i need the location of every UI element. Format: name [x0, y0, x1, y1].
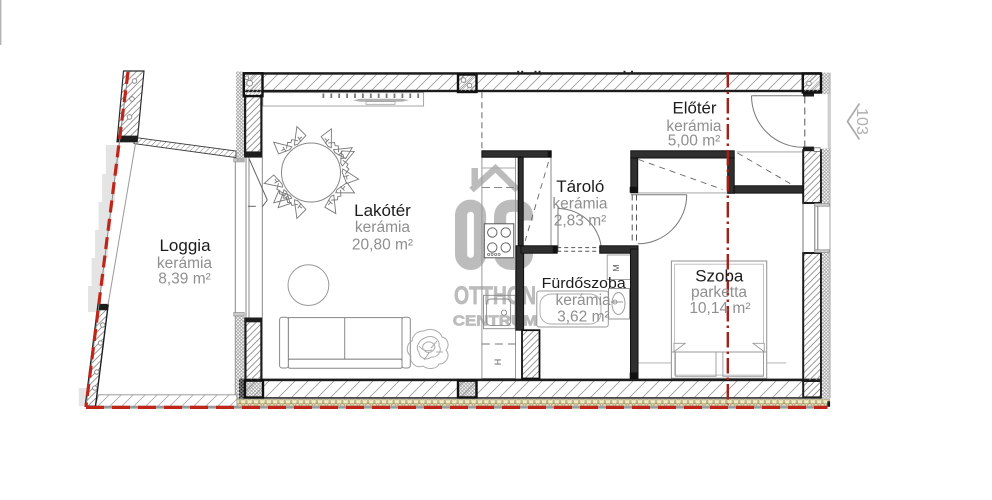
- svg-text:kerámia: kerámia: [355, 219, 411, 236]
- svg-text:M: M: [611, 264, 621, 271]
- svg-text:kerámia: kerámia: [552, 196, 608, 213]
- svg-text:kerámia: kerámia: [556, 292, 612, 309]
- svg-text:8,39 m²: 8,39 m²: [158, 271, 211, 288]
- svg-text:Tároló: Tároló: [556, 177, 604, 196]
- svg-text:5,00 m²: 5,00 m²: [668, 133, 721, 150]
- svg-text:CENTRUM: CENTRUM: [453, 313, 538, 330]
- svg-text:Lakótér: Lakótér: [354, 201, 411, 220]
- svg-text:2,83 m²: 2,83 m²: [554, 212, 607, 229]
- svg-text:parketta: parketta: [691, 284, 747, 301]
- svg-text:20,80 m²: 20,80 m²: [352, 236, 413, 253]
- svg-text:H: H: [493, 359, 503, 366]
- svg-text:Előtér: Előtér: [673, 99, 717, 118]
- svg-text:3,62 m²: 3,62 m²: [557, 308, 610, 325]
- svg-text:103: 103: [853, 108, 870, 135]
- svg-text:Loggia: Loggia: [159, 236, 211, 255]
- svg-text:10,14 m²: 10,14 m²: [689, 300, 750, 317]
- svg-text:kerámia: kerámia: [157, 255, 213, 272]
- svg-text:Fürdőszoba: Fürdőszoba: [542, 276, 627, 292]
